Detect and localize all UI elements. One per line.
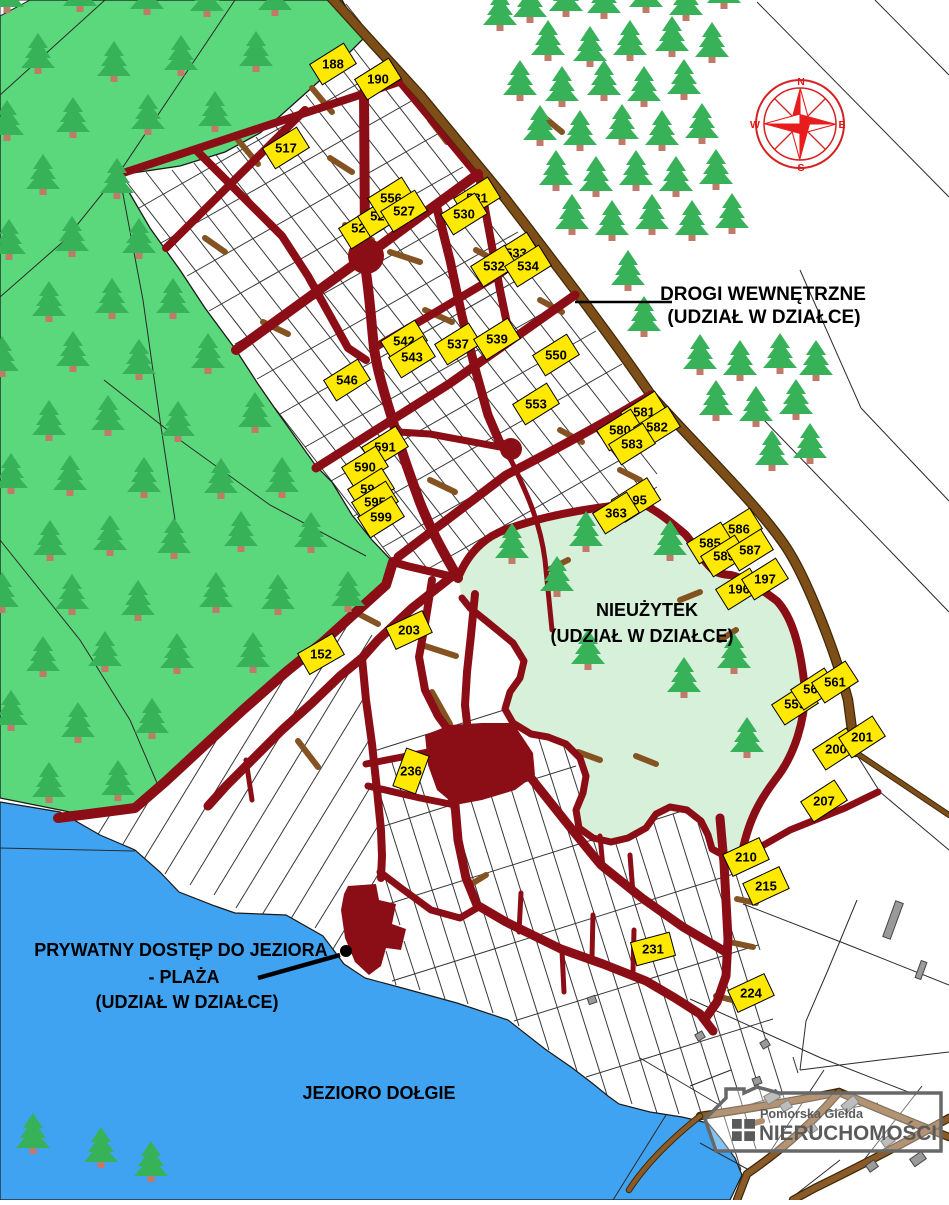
svg-text:561: 561 xyxy=(824,675,846,690)
svg-text:Pomorska Giełda: Pomorska Giełda xyxy=(760,1107,864,1121)
svg-text:215: 215 xyxy=(755,879,777,894)
svg-text:530: 530 xyxy=(453,207,475,222)
svg-text:188: 188 xyxy=(322,57,344,72)
svg-text:152: 152 xyxy=(310,647,332,662)
svg-text:(UDZIAŁ W DZIAŁCE): (UDZIAŁ W DZIAŁCE) xyxy=(96,992,279,1012)
svg-text:553: 553 xyxy=(525,397,547,412)
svg-text:JEZIORO DOŁGIE: JEZIORO DOŁGIE xyxy=(302,1083,455,1103)
svg-text:203: 203 xyxy=(398,623,420,638)
svg-text:543: 543 xyxy=(401,350,423,365)
svg-text:599: 599 xyxy=(370,510,392,525)
svg-text:E: E xyxy=(838,119,845,131)
svg-text:583: 583 xyxy=(621,437,643,452)
svg-text:S: S xyxy=(797,162,804,174)
svg-text:236: 236 xyxy=(400,764,422,779)
svg-text:PRYWATNY DOSTĘP DO JEZIORA: PRYWATNY DOSTĘP DO JEZIORA xyxy=(34,940,327,960)
svg-text:190: 190 xyxy=(367,72,389,87)
svg-text:210: 210 xyxy=(735,850,757,865)
svg-text:197: 197 xyxy=(754,572,776,587)
svg-text:363: 363 xyxy=(605,506,627,521)
svg-text:(UDZIAŁ W DZIAŁCE): (UDZIAŁ W DZIAŁCE) xyxy=(667,307,860,328)
svg-text:534: 534 xyxy=(517,259,539,274)
svg-text:NIERUCHOMOŚCI: NIERUCHOMOŚCI xyxy=(759,1120,937,1145)
svg-text:DROGI WEWNĘTRZNE: DROGI WEWNĘTRZNE xyxy=(660,284,866,305)
svg-text:582: 582 xyxy=(646,420,668,435)
svg-text:NIEUŻYTEK: NIEUŻYTEK xyxy=(596,600,698,620)
svg-text:587: 587 xyxy=(739,543,761,558)
svg-text:532: 532 xyxy=(483,259,505,274)
svg-text:201: 201 xyxy=(851,730,873,745)
svg-text:207: 207 xyxy=(813,794,835,809)
svg-text:546: 546 xyxy=(336,373,358,388)
svg-text:527: 527 xyxy=(393,204,415,219)
svg-text:550: 550 xyxy=(545,348,567,363)
svg-text:539: 539 xyxy=(486,332,508,347)
svg-text:537: 537 xyxy=(447,337,469,352)
svg-text:586: 586 xyxy=(728,522,750,537)
svg-text:224: 224 xyxy=(740,986,762,1001)
svg-text:517: 517 xyxy=(275,141,297,156)
svg-text:- PLAŻA: - PLAŻA xyxy=(149,967,220,987)
svg-text:590: 590 xyxy=(354,460,376,475)
svg-text:231: 231 xyxy=(642,942,664,957)
svg-text:(UDZIAŁ W DZIAŁCE): (UDZIAŁ W DZIAŁCE) xyxy=(551,626,734,646)
svg-text:N: N xyxy=(797,76,805,88)
svg-text:W: W xyxy=(750,119,760,131)
